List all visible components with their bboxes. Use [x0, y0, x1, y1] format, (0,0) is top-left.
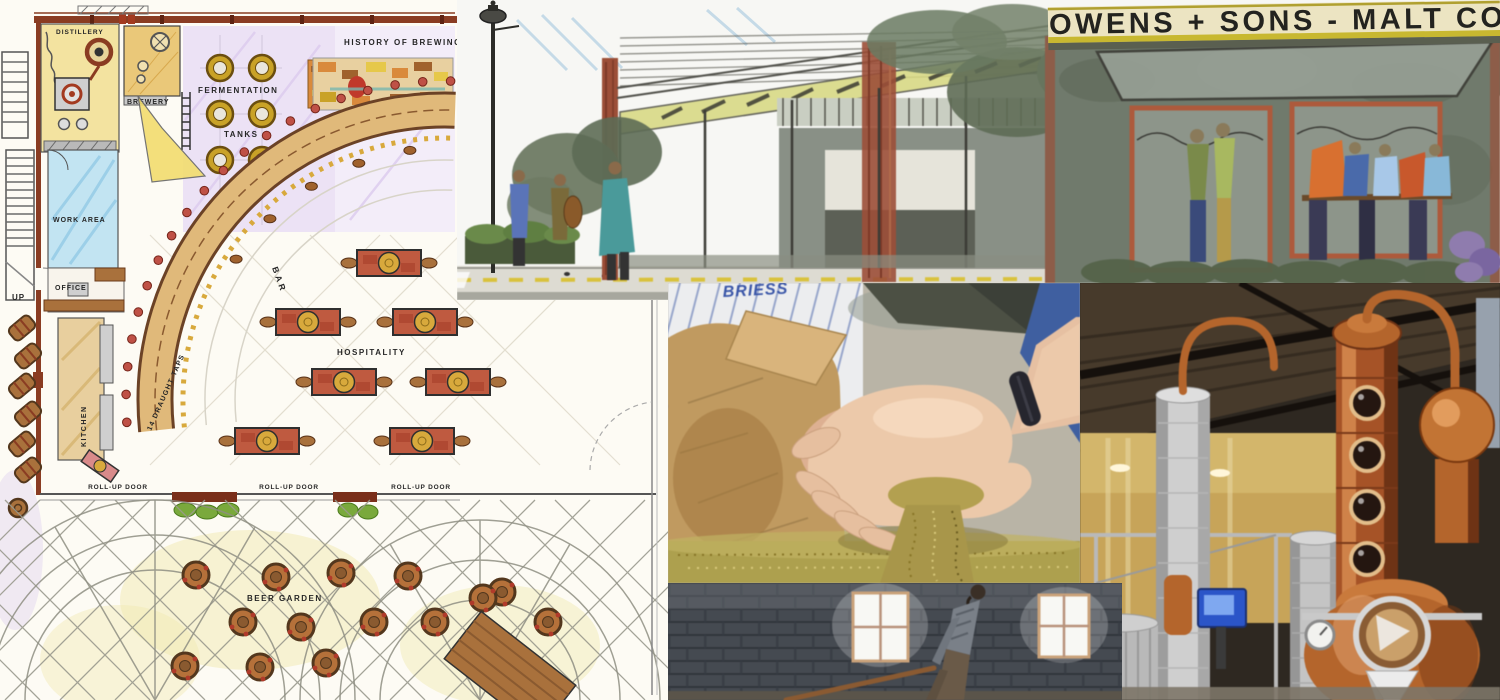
label-hospitality: HOSPITALITY	[337, 348, 406, 357]
office-room: OFFICE	[44, 268, 125, 312]
malting-floor-photo	[668, 583, 1122, 700]
distillery-room: DISTILLERY	[41, 24, 119, 152]
label-up: UP	[12, 293, 25, 302]
window-2	[1020, 587, 1108, 663]
label-kitchen: KITCHEN	[81, 405, 88, 447]
label-work-area: WORK AREA	[53, 217, 106, 224]
label-tanks: TANKS	[224, 130, 258, 139]
owens-sign: OWENS + SONS - MALT CO	[1048, 0, 1500, 50]
label-roll-up-door-3: ROLL-UP DOOR	[391, 484, 451, 491]
label-fermentation: FERMENTATION	[198, 86, 278, 95]
window-1	[832, 583, 928, 667]
distillery-stills-photo	[1080, 283, 1500, 700]
work-area-room: WORK AREA	[48, 150, 118, 268]
label-roll-up-door-2: ROLL-UP DOOR	[259, 484, 319, 491]
label-brewery: BREWERY	[127, 99, 170, 106]
label-distillery: DISTILLERY	[56, 29, 104, 36]
malting-floor-drawing	[668, 583, 1122, 700]
malt-hands-photo: BRIESS	[668, 283, 1080, 583]
storefront-building	[1045, 36, 1500, 287]
label-beer-garden: BEER GARDEN	[247, 594, 323, 603]
distillery-stills-drawing	[1080, 283, 1500, 700]
exterior-sketch-drawing: OWENS + SONS - MALT CO	[457, 0, 1500, 300]
label-roll-up-door-1: ROLL-UP DOOR	[88, 484, 148, 491]
exterior-sketch-image: OWENS + SONS - MALT CO	[457, 0, 1500, 300]
label-office: OFFICE	[55, 285, 87, 292]
glass-awning	[1097, 42, 1492, 100]
malt-hands-drawing: BRIESS	[668, 283, 1080, 583]
label-history-of-brewing: HISTORY OF BREWING	[344, 38, 462, 47]
brewery-concept-collage: DISTILLERY BREWERY FERMENTATION TANKS	[0, 0, 1500, 700]
